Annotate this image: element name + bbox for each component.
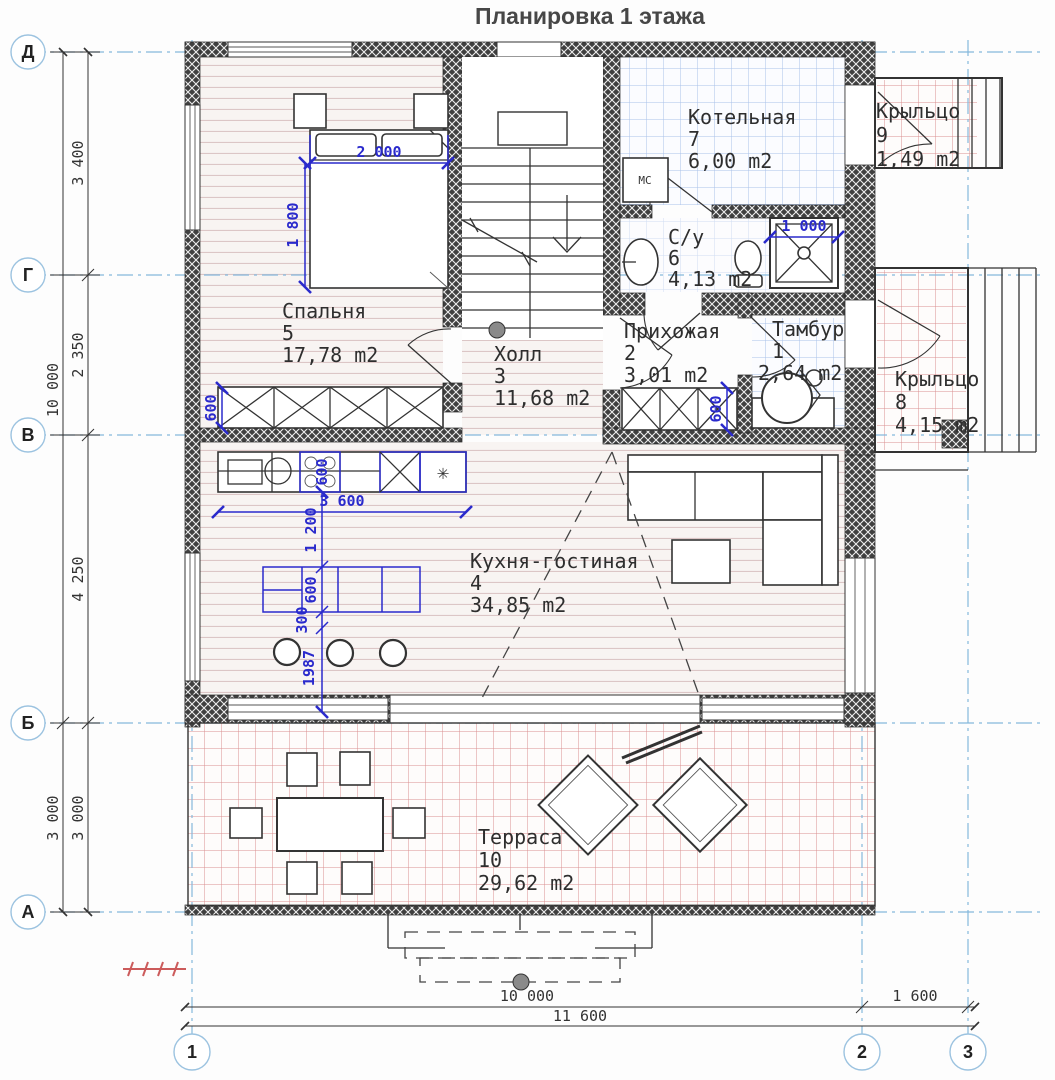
dim-counter-depth: 600 — [313, 458, 331, 485]
chair — [287, 753, 317, 786]
dim-total-height: 10 000 — [44, 363, 62, 417]
dim-row-ba: 3 000 — [69, 795, 87, 840]
coffee-table — [672, 540, 730, 583]
svg-text:2: 2 — [624, 341, 636, 365]
svg-text:1,49 m2: 1,49 m2 — [876, 147, 960, 171]
bar-stool — [380, 640, 406, 666]
dim-row-vb: 4 250 — [69, 556, 87, 601]
axis-col-2: 2 — [844, 1034, 880, 1070]
svg-text:Тамбур: Тамбур — [772, 317, 844, 341]
chair — [287, 862, 317, 894]
svg-text:Д: Д — [22, 42, 35, 62]
door-gap-porch9 — [845, 85, 875, 165]
nightstand — [294, 94, 326, 128]
stair-newel-post — [489, 322, 505, 338]
dim-shower: 1 000 — [781, 217, 826, 235]
nightstand — [414, 94, 448, 128]
label-prihozhaya: Прихожая 2 3,01 m2 — [624, 319, 720, 387]
axis-col-1: 1 — [174, 1034, 210, 1070]
axis-row-d: Д — [11, 35, 45, 69]
svg-text:11,68 m2: 11,68 m2 — [494, 386, 590, 410]
dim-bed-width: 2 000 — [356, 143, 401, 161]
dim-island-wall: 1987 — [300, 650, 318, 686]
window-kitchen-right — [845, 558, 875, 693]
dim-counter-length: 3 600 — [319, 492, 364, 510]
bar-stool — [274, 639, 300, 665]
svg-text:Крыльцо: Крыльцо — [895, 367, 979, 391]
svg-text:1: 1 — [187, 1042, 197, 1062]
svg-text:Холл: Холл — [494, 342, 542, 366]
svg-text:29,62 m2: 29,62 m2 — [478, 871, 574, 895]
dim-island-gap: 1 200 — [302, 507, 320, 552]
svg-text:7: 7 — [688, 127, 700, 151]
svg-text:Б: Б — [22, 713, 35, 733]
wardrobe-bedroom — [218, 387, 443, 428]
svg-text:1: 1 — [772, 339, 784, 363]
svg-text:17,78 m2: 17,78 m2 — [282, 343, 378, 367]
dim-col-12: 10 000 — [500, 987, 554, 1005]
page-title: Планировка 1 этажа — [475, 3, 705, 29]
svg-text:Крыльцо: Крыльцо — [876, 99, 960, 123]
svg-text:2,64 m2: 2,64 m2 — [758, 361, 842, 385]
dim-wardrobe-depth: 600 — [202, 394, 220, 421]
svg-text:В: В — [22, 425, 35, 445]
snowflake-icon: ✳ — [437, 460, 449, 484]
floorplan-canvas: МС ✳ — [0, 0, 1055, 1080]
svg-text:Котельная: Котельная — [688, 105, 796, 129]
sliding-door-bottom — [390, 695, 700, 723]
svg-text:2: 2 — [857, 1042, 867, 1062]
entry-steps — [388, 915, 652, 990]
svg-text:6,00 m2: 6,00 m2 — [688, 149, 772, 173]
door-gap-porch8 — [845, 300, 875, 368]
axis-col-3: 3 — [950, 1034, 986, 1070]
section-mark — [123, 962, 186, 976]
dim-island-offset: 300 — [293, 606, 311, 633]
chair — [393, 808, 425, 838]
dim-col-23: 1 600 — [892, 987, 937, 1005]
window-kitchen-bottom-right — [702, 698, 844, 720]
svg-text:3: 3 — [963, 1042, 973, 1062]
svg-text:4: 4 — [470, 571, 482, 595]
floorplan-drawing: МС ✳ — [0, 0, 1055, 1080]
axis-row-b: Б — [11, 706, 45, 740]
window-kitchen-left — [185, 553, 200, 681]
axis-row-v: В — [11, 418, 45, 452]
chair — [342, 862, 372, 894]
axis-row-g: Г — [11, 258, 45, 292]
dim-row-ba2: 3 000 — [44, 795, 62, 840]
staircase — [462, 57, 603, 340]
svg-text:9: 9 — [876, 123, 888, 147]
dim-island-width: 600 — [302, 576, 320, 603]
svg-text:3: 3 — [494, 364, 506, 388]
svg-text:4,13 m2: 4,13 m2 — [668, 267, 752, 291]
svg-text:А: А — [22, 902, 35, 922]
svg-text:10: 10 — [478, 848, 502, 872]
window-kitchen-bottom-left — [228, 698, 388, 720]
svg-text:5: 5 — [282, 321, 294, 345]
kitchen-counter: ✳ — [218, 452, 466, 492]
svg-text:3,01 m2: 3,01 m2 — [624, 363, 708, 387]
chair — [340, 752, 370, 785]
chair — [230, 808, 262, 838]
dim-row-gv: 2 350 — [69, 332, 87, 377]
dining-table — [277, 798, 383, 851]
dim-col-total: 11 600 — [553, 1007, 607, 1025]
window-bedroom-top — [228, 42, 352, 57]
svg-text:Прихожая: Прихожая — [624, 319, 720, 343]
bar-stool — [327, 640, 353, 666]
axis-row-a: А — [11, 895, 45, 929]
dim-row-dg: 3 400 — [69, 140, 87, 185]
svg-text:Г: Г — [23, 265, 33, 285]
svg-text:Терраса: Терраса — [478, 825, 562, 849]
window-bedroom-left — [185, 105, 200, 230]
washing-machine: МС — [623, 158, 668, 202]
dim-hallway-depth: 600 — [707, 395, 725, 422]
svg-text:4,15 m2: 4,15 m2 — [895, 413, 979, 437]
washer-label: МС — [638, 174, 651, 187]
svg-text:Кухня-гостиная: Кухня-гостиная — [470, 549, 639, 573]
svg-text:Спальня: Спальня — [282, 299, 366, 323]
svg-text:34,85 m2: 34,85 m2 — [470, 593, 566, 617]
svg-text:8: 8 — [895, 390, 907, 414]
dim-bed-height: 1 800 — [284, 202, 302, 247]
